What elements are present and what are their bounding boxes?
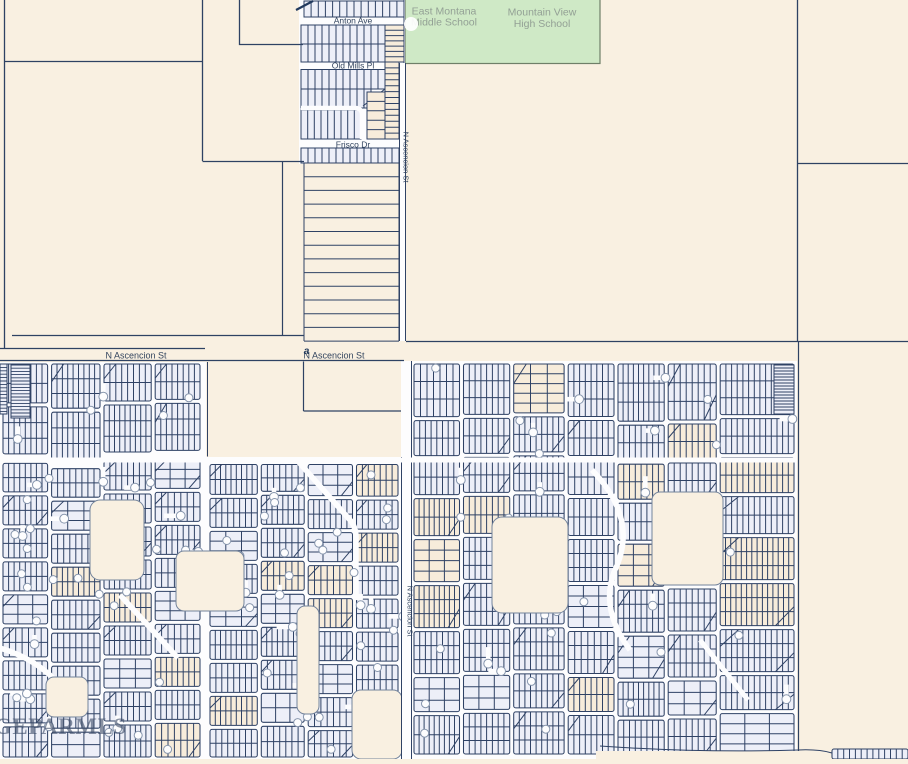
svg-text:Mountain View: Mountain View (508, 7, 577, 19)
svg-text:N Ascencion St: N Ascencion St (105, 351, 167, 361)
svg-text:High School: High School (514, 18, 571, 30)
svg-text:N Ascencion St: N Ascencion St (402, 132, 411, 184)
svg-text:Old Mills Pl: Old Mills Pl (332, 61, 375, 71)
svg-text:N Ascencion St: N Ascencion St (406, 586, 415, 638)
svg-text:Frisco Dr: Frisco Dr (336, 140, 371, 150)
svg-text:Anton Ave: Anton Ave (334, 16, 373, 26)
svg-text:Middle School: Middle School (411, 17, 477, 29)
svg-text:a: a (304, 346, 310, 357)
svg-text:N Ascencion St: N Ascencion St (303, 351, 365, 361)
svg-text:GEPARMLS: GEPARMLS (0, 714, 127, 739)
